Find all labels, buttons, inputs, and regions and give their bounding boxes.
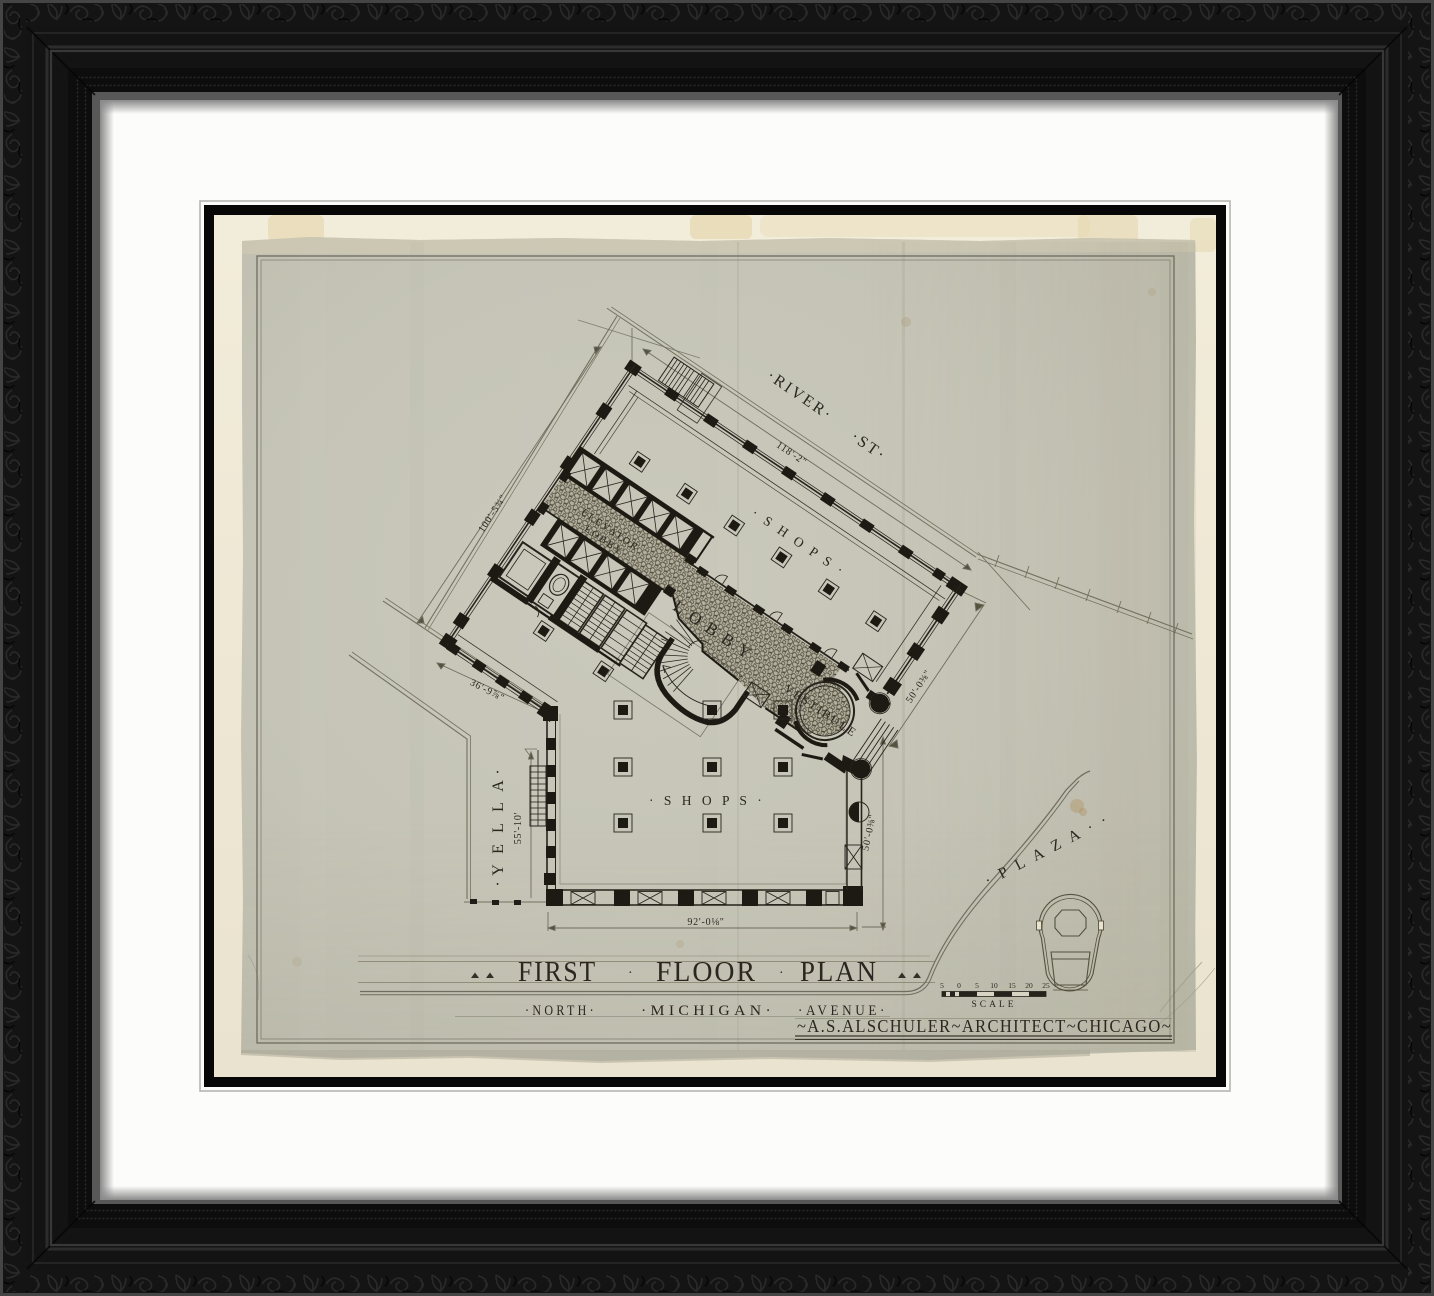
svg-text:55'-10': 55'-10': [513, 812, 524, 845]
svg-text:SCALE: SCALE: [971, 1000, 1016, 1010]
svg-text:92'-0⅛": 92'-0⅛": [687, 917, 724, 928]
svg-text:·: ·: [628, 966, 633, 981]
svg-text:L: L: [490, 802, 507, 812]
svg-text:·MICHIGAN·: ·MICHIGAN·: [641, 1003, 775, 1019]
svg-text:A: A: [490, 780, 507, 792]
svg-text:E: E: [490, 844, 507, 854]
svg-text:15: 15: [1008, 981, 1016, 990]
svg-text:0: 0: [957, 981, 961, 990]
svg-text:5: 5: [940, 981, 944, 990]
svg-text:·: ·: [779, 966, 784, 981]
svg-text:10: 10: [990, 981, 998, 990]
svg-text:Y: Y: [490, 864, 507, 876]
svg-text:~A.S.ALSCHULER~ARCHITECT~CHICA: ~A.S.ALSCHULER~ARCHITECT~CHICAGO~: [797, 1016, 1172, 1036]
svg-text:FLOOR: FLOOR: [656, 957, 757, 988]
svg-text:·: ·: [490, 881, 507, 886]
svg-text:25: 25: [1042, 981, 1050, 990]
svg-text:·: ·: [490, 769, 507, 774]
svg-text:·NORTH·: ·NORTH·: [525, 1003, 597, 1019]
svg-text:20: 20: [1025, 981, 1033, 990]
svg-text:5: 5: [975, 981, 979, 990]
svg-text:· S H O P S ·: · S H O P S ·: [649, 793, 765, 808]
svg-text:PLAN: PLAN: [800, 957, 878, 988]
svg-text:L: L: [490, 823, 507, 833]
svg-text:FIRST: FIRST: [518, 957, 597, 988]
